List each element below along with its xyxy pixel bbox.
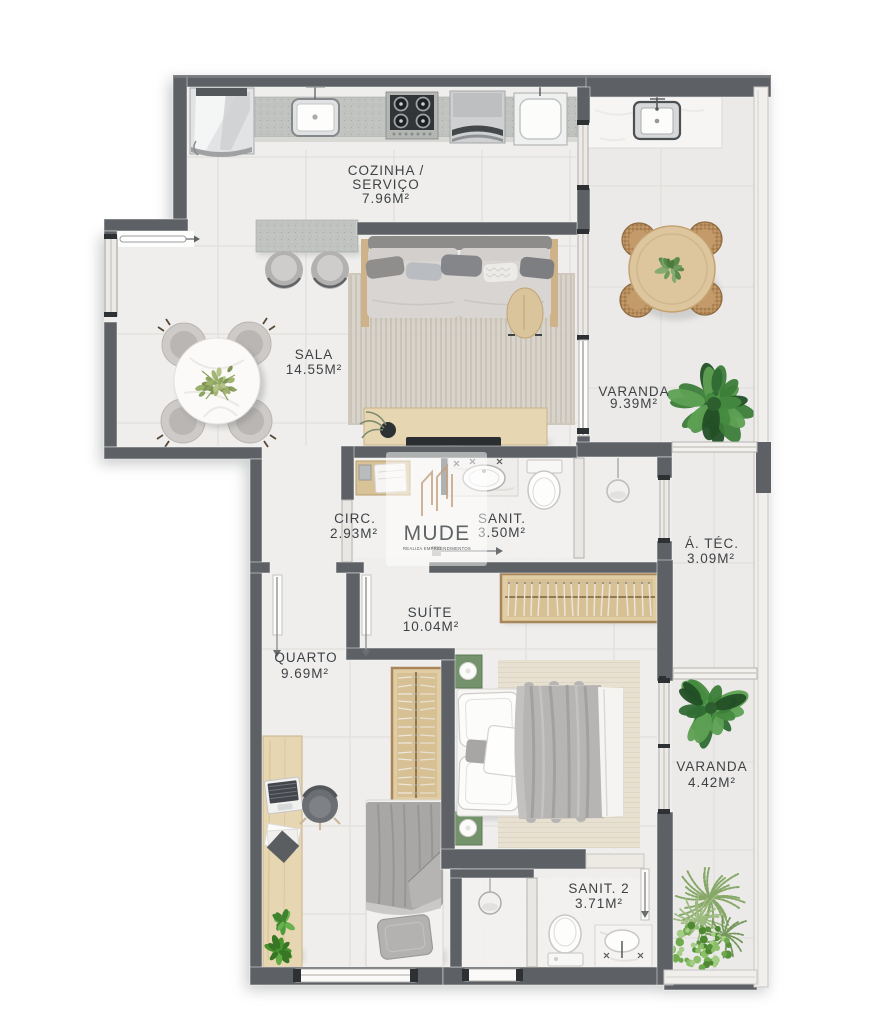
svg-text:SANIT. 2: SANIT. 2 xyxy=(568,881,629,896)
svg-text:9.69M²: 9.69M² xyxy=(281,666,329,681)
svg-text:CIRC.: CIRC. xyxy=(334,511,376,526)
svg-text:SERVIÇO: SERVIÇO xyxy=(352,177,420,192)
svg-text:7.96M²: 7.96M² xyxy=(362,191,410,206)
svg-text:QUARTO: QUARTO xyxy=(274,650,337,665)
svg-text:MUDE: MUDE xyxy=(404,522,471,545)
svg-text:VARANDA: VARANDA xyxy=(676,759,747,774)
svg-text:3.71M²: 3.71M² xyxy=(575,896,623,911)
svg-text:SALA: SALA xyxy=(295,347,334,362)
svg-text:10.04M²: 10.04M² xyxy=(403,619,460,634)
svg-text:9.39M²: 9.39M² xyxy=(610,396,658,411)
svg-text:REALIZA EMPREENDIMENTOS: REALIZA EMPREENDIMENTOS xyxy=(403,546,471,551)
svg-text:SUÍTE: SUÍTE xyxy=(408,605,453,620)
svg-text:4.42M²: 4.42M² xyxy=(688,775,736,790)
svg-text:COZINHA /: COZINHA / xyxy=(348,163,425,178)
svg-text:14.55M²: 14.55M² xyxy=(286,362,343,377)
svg-text:Á. TÉC.: Á. TÉC. xyxy=(685,536,739,551)
svg-text:2.93M²: 2.93M² xyxy=(330,526,378,541)
svg-text:3.09M²: 3.09M² xyxy=(687,551,735,566)
